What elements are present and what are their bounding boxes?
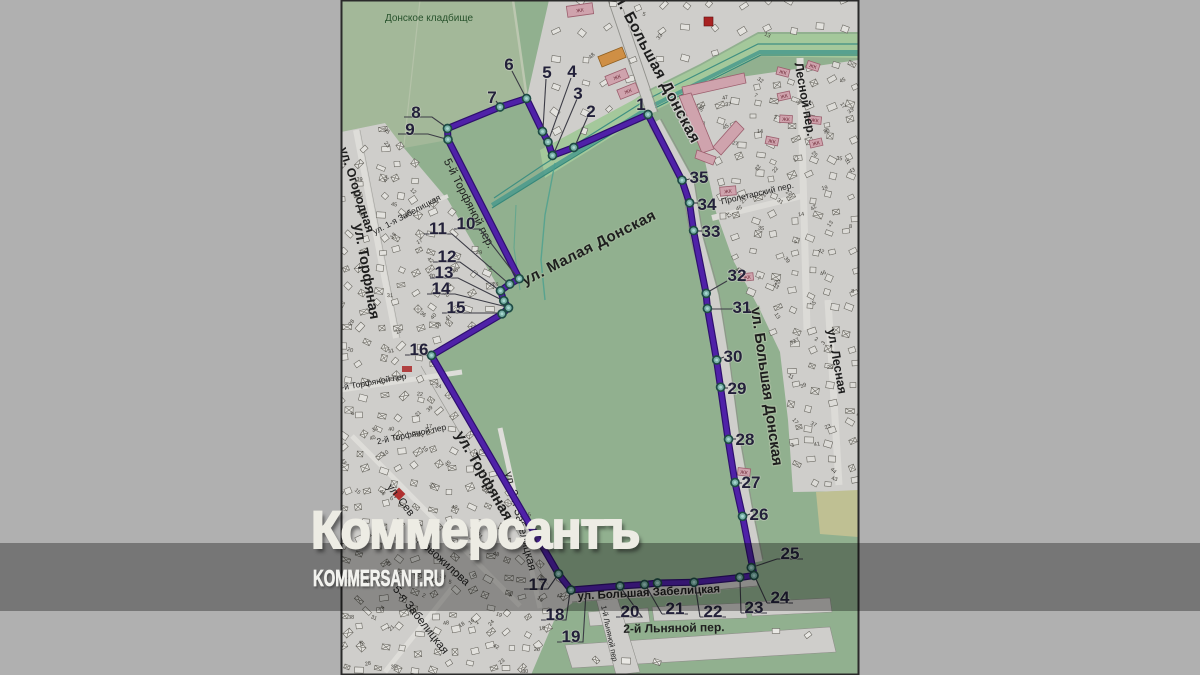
svg-text:45: 45 bbox=[391, 202, 398, 209]
svg-text:38: 38 bbox=[348, 615, 354, 621]
svg-text:2-й Льняной пер.: 2-й Льняной пер. bbox=[623, 620, 725, 636]
svg-text:ЖК: ЖК bbox=[782, 117, 790, 123]
svg-text:14: 14 bbox=[757, 129, 763, 135]
svg-text:6: 6 bbox=[504, 55, 513, 74]
svg-text:34: 34 bbox=[698, 195, 717, 214]
svg-text:Донское кладбище: Донское кладбище bbox=[385, 12, 474, 24]
svg-text:7: 7 bbox=[487, 88, 496, 107]
svg-text:14: 14 bbox=[432, 279, 451, 298]
svg-text:4: 4 bbox=[567, 62, 577, 81]
svg-text:31: 31 bbox=[387, 293, 393, 299]
svg-text:10: 10 bbox=[539, 625, 546, 632]
svg-text:24: 24 bbox=[435, 322, 442, 329]
svg-text:28: 28 bbox=[365, 661, 372, 668]
svg-text:1: 1 bbox=[636, 95, 645, 114]
svg-text:11: 11 bbox=[429, 219, 447, 238]
svg-text:2: 2 bbox=[774, 115, 777, 121]
svg-text:20: 20 bbox=[534, 647, 540, 653]
svg-text:24: 24 bbox=[435, 383, 442, 390]
svg-text:3: 3 bbox=[573, 84, 582, 103]
svg-text:28: 28 bbox=[736, 430, 755, 449]
svg-text:5: 5 bbox=[542, 63, 551, 82]
svg-text:35: 35 bbox=[391, 664, 398, 671]
svg-text:16: 16 bbox=[410, 340, 429, 359]
svg-text:29: 29 bbox=[728, 379, 747, 398]
svg-text:10: 10 bbox=[457, 214, 476, 233]
svg-text:33: 33 bbox=[702, 222, 721, 241]
svg-text:19: 19 bbox=[562, 627, 581, 646]
svg-text:9: 9 bbox=[405, 120, 414, 139]
svg-text:8: 8 bbox=[849, 224, 852, 230]
svg-text:48: 48 bbox=[443, 620, 450, 627]
svg-text:37: 37 bbox=[725, 101, 732, 108]
svg-text:2: 2 bbox=[586, 102, 595, 121]
svg-text:ЖК: ЖК bbox=[576, 7, 584, 14]
svg-text:35: 35 bbox=[836, 156, 843, 163]
svg-text:8: 8 bbox=[851, 289, 855, 295]
svg-text:35: 35 bbox=[690, 168, 709, 187]
svg-text:14: 14 bbox=[798, 212, 805, 219]
svg-text:41: 41 bbox=[813, 441, 820, 448]
svg-text:30: 30 bbox=[724, 347, 743, 366]
svg-text:31: 31 bbox=[733, 298, 752, 317]
svg-text:22: 22 bbox=[416, 391, 423, 398]
svg-text:15: 15 bbox=[447, 298, 466, 317]
svg-text:26: 26 bbox=[750, 505, 769, 524]
svg-text:27: 27 bbox=[742, 473, 761, 492]
svg-text:32: 32 bbox=[728, 266, 747, 285]
